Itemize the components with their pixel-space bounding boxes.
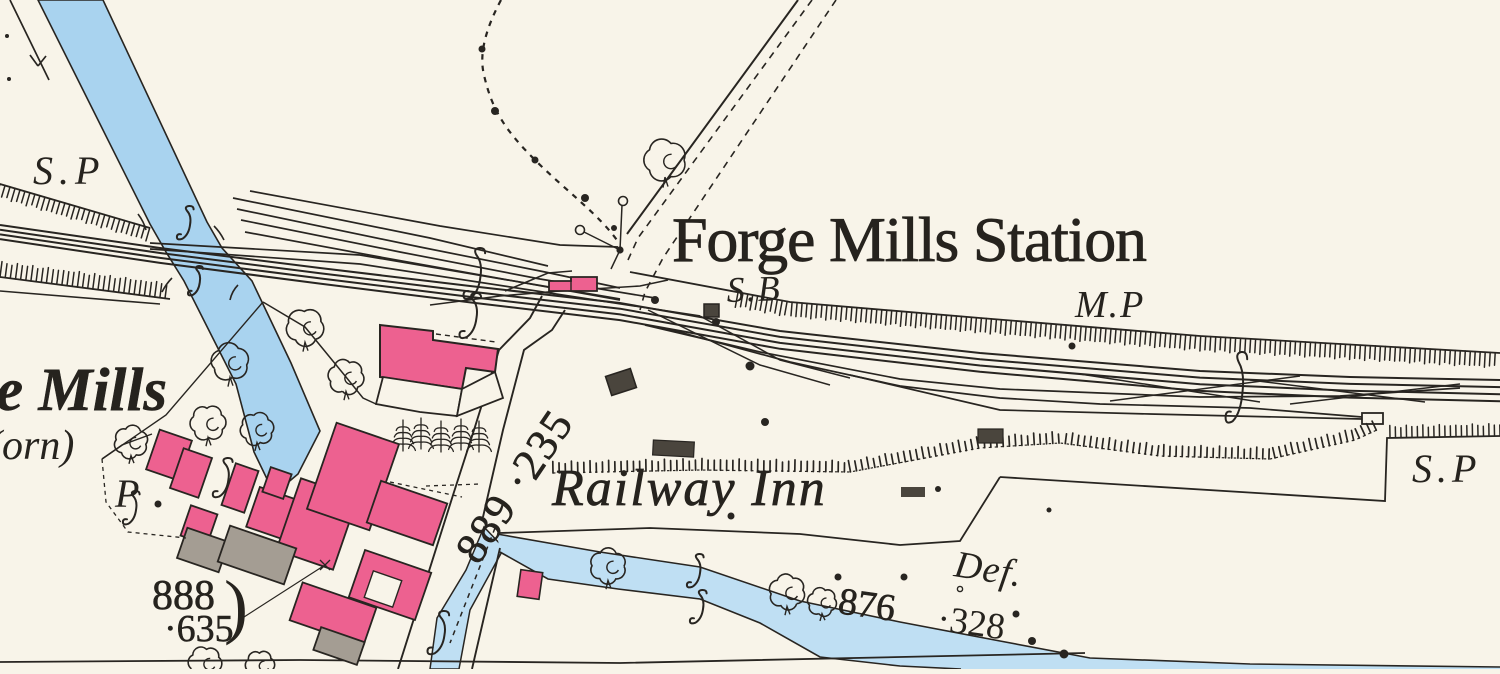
svg-text:876: 876 (836, 580, 898, 630)
svg-text:S.B: S.B (726, 268, 782, 310)
svg-text:e Mills: e Mills (0, 357, 167, 424)
svg-text:S.P: S.P (33, 148, 105, 193)
svg-text:M.P: M.P (1074, 284, 1145, 326)
svg-text:Forge Mills Station: Forge Mills Station (672, 204, 1147, 275)
svg-text:): ) (224, 566, 248, 646)
svg-text:(orn): (orn) (0, 423, 74, 469)
svg-text:P: P (114, 471, 139, 516)
svg-text:S.P: S.P (1412, 446, 1481, 491)
svg-text:Railway Inn: Railway Inn (551, 460, 827, 517)
